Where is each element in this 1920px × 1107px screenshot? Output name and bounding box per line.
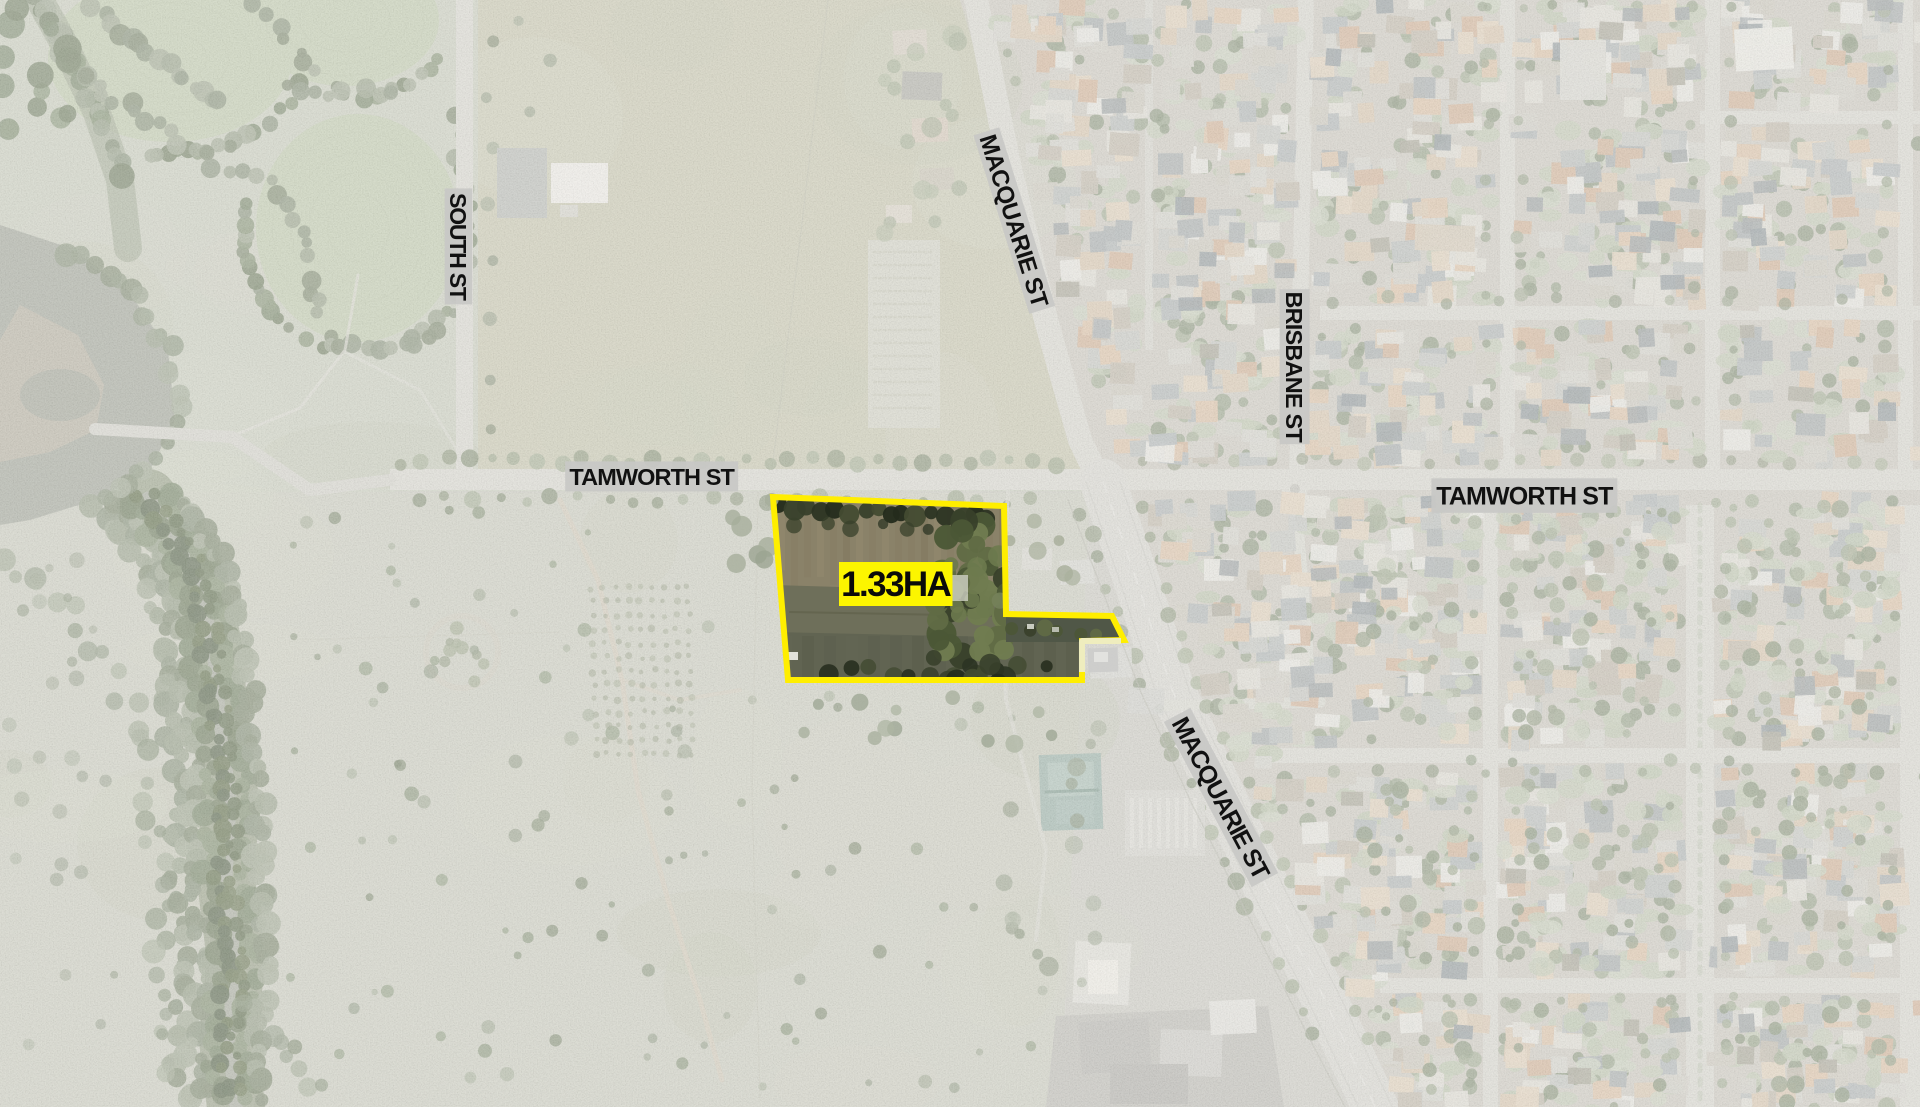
- svg-text:SOUTH ST: SOUTH ST: [445, 193, 471, 301]
- svg-text:1.33HA: 1.33HA: [841, 565, 951, 604]
- svg-text:TAMWORTH ST: TAMWORTH ST: [569, 464, 735, 490]
- svg-text:BRISBANE ST: BRISBANE ST: [1281, 291, 1307, 443]
- svg-text:TAMWORTH ST: TAMWORTH ST: [1436, 483, 1613, 511]
